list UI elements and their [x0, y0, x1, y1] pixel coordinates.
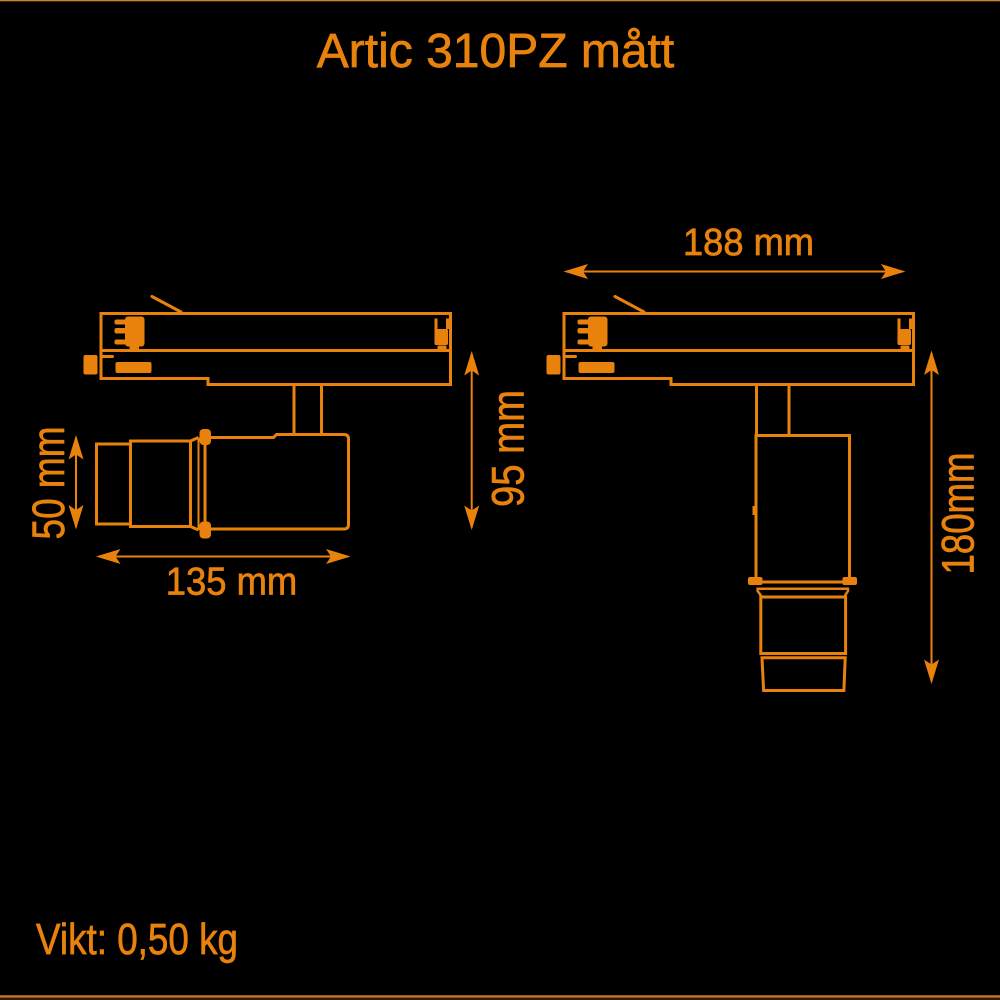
- svg-text:180mm: 180mm: [933, 453, 984, 575]
- svg-text:Artic 310PZ mått: Artic 310PZ mått: [317, 25, 674, 78]
- svg-text:95 mm: 95 mm: [483, 390, 534, 507]
- svg-text:Vikt: 0,50 kg: Vikt: 0,50 kg: [36, 916, 238, 964]
- svg-text:188 mm: 188 mm: [683, 222, 814, 264]
- svg-text:135 mm: 135 mm: [166, 561, 298, 604]
- svg-text:50 mm: 50 mm: [23, 427, 74, 540]
